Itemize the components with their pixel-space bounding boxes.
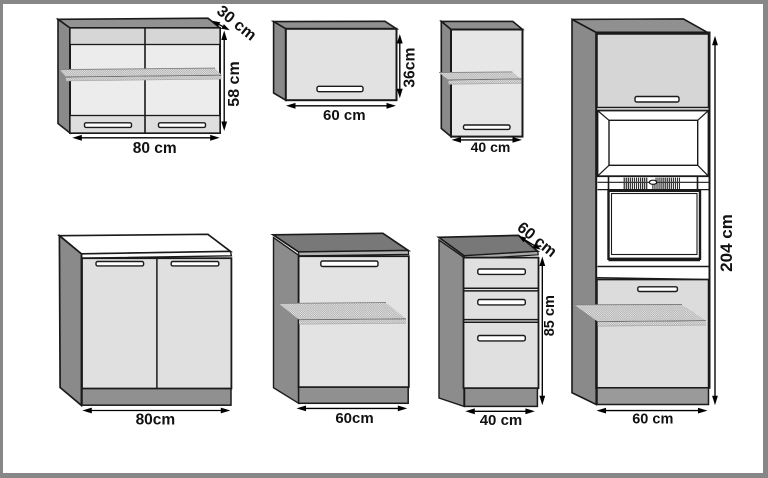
svg-text:36cm: 36cm <box>401 48 418 88</box>
svg-text:60 cm: 60 cm <box>323 107 366 124</box>
svg-text:40 cm: 40 cm <box>471 139 511 155</box>
svg-text:58 cm: 58 cm <box>226 61 243 106</box>
svg-text:85 cm: 85 cm <box>542 295 558 336</box>
svg-text:204 cm: 204 cm <box>717 214 736 272</box>
svg-text:60 cm: 60 cm <box>632 412 673 428</box>
svg-text:40 cm: 40 cm <box>480 412 523 429</box>
svg-text:80 cm: 80 cm <box>133 140 177 157</box>
svg-text:60cm: 60cm <box>335 410 373 427</box>
svg-text:80cm: 80cm <box>136 411 176 428</box>
